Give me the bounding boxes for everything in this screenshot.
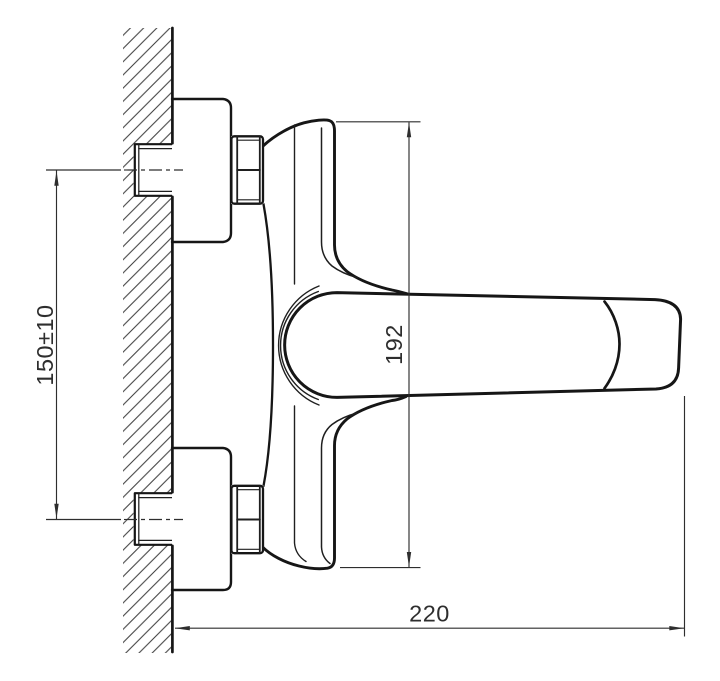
arrowhead-left: [175, 626, 190, 630]
dimension-label-150: 150±10: [32, 304, 58, 385]
arrowhead-right: [669, 626, 684, 630]
technical-drawing: 150±10 192 220: [0, 0, 720, 681]
arrowhead-up: [54, 171, 58, 186]
dimension-label-220: 220: [409, 601, 450, 627]
hex-nut-top: [231, 136, 264, 204]
drawing-canvas: 150±10 192 220: [0, 0, 720, 681]
arrowhead-down: [54, 504, 58, 519]
wall-hatching: [123, 28, 173, 653]
arrowhead-up: [407, 122, 411, 137]
arrowhead-down: [407, 552, 411, 567]
wall-section: [123, 28, 173, 653]
handle-end-cap-line: [605, 302, 620, 389]
dimension-label-192: 192: [381, 324, 407, 365]
hex-nut-bottom: [231, 486, 264, 554]
